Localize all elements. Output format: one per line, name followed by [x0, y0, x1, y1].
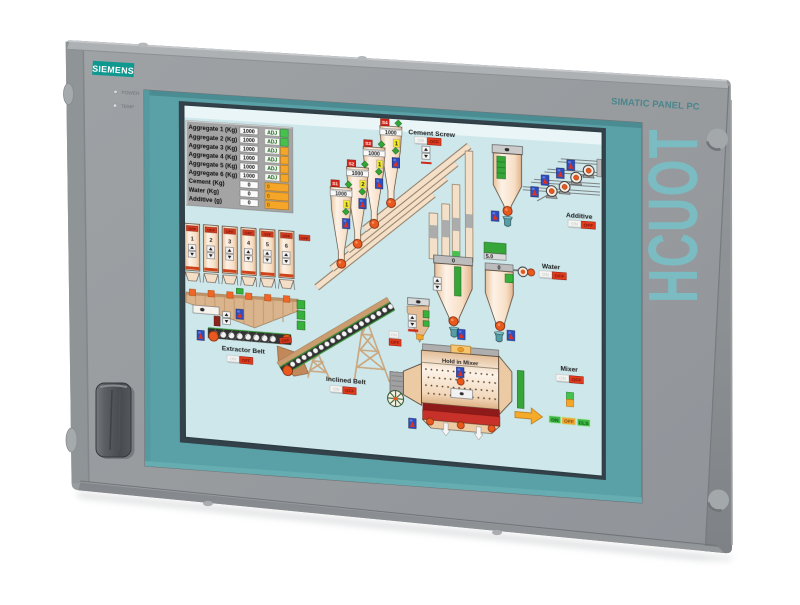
- svg-text:HCUOT: HCUOT: [634, 128, 712, 303]
- svg-text:POWER: POWER: [121, 90, 140, 97]
- svg-text:TEMP: TEMP: [121, 104, 135, 111]
